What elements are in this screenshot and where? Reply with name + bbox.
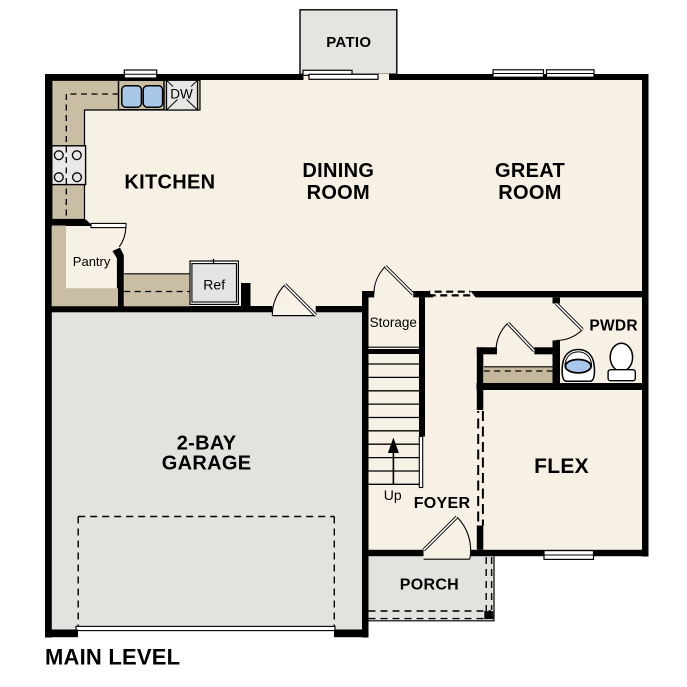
svg-text:GREAT: GREAT [495, 160, 565, 182]
svg-text:Ref: Ref [203, 277, 225, 293]
svg-text:ROOM: ROOM [498, 182, 561, 204]
svg-text:KITCHEN: KITCHEN [124, 172, 215, 194]
svg-text:MAIN LEVEL: MAIN LEVEL [45, 645, 180, 670]
svg-text:2-BAY: 2-BAY [177, 433, 237, 455]
svg-text:FLEX: FLEX [534, 455, 589, 478]
svg-text:ROOM: ROOM [307, 182, 370, 204]
svg-text:GARAGE: GARAGE [162, 453, 252, 475]
svg-text:PORCH: PORCH [400, 577, 459, 594]
svg-text:DINING: DINING [302, 160, 374, 182]
svg-text:FOYER: FOYER [414, 495, 471, 512]
svg-text:Pantry: Pantry [73, 254, 111, 269]
svg-text:Storage: Storage [370, 315, 417, 330]
svg-text:PWDR: PWDR [589, 318, 638, 335]
svg-text:DW: DW [170, 86, 193, 101]
svg-text:PATIO: PATIO [326, 34, 371, 51]
svg-text:Up: Up [384, 487, 402, 503]
